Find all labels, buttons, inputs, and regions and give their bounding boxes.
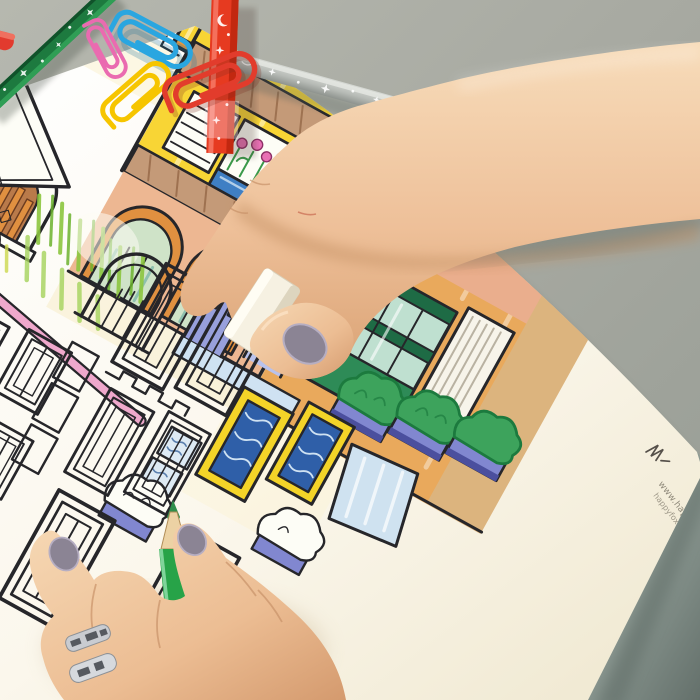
photo-of-coloring-scene: www.happyfox happyfox	[0, 0, 700, 700]
scene-svg: www.happyfox happyfox	[0, 0, 700, 700]
